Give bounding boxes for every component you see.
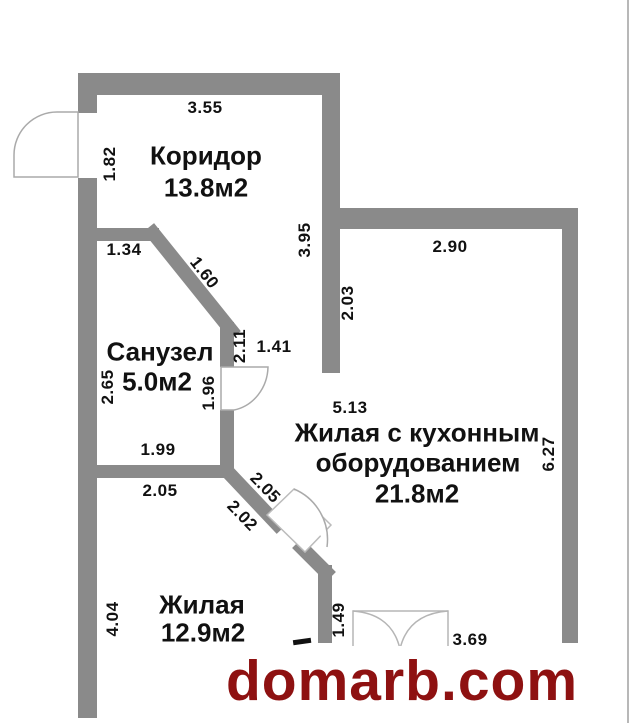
dim-livingkitchen-width: 5.13: [332, 398, 367, 418]
dim-bathroom-left: 2.65: [98, 369, 118, 404]
dim-livingkitchen-right: 6.27: [539, 436, 559, 471]
watermark-text: domarb.com: [226, 648, 578, 714]
clipped-dimension-mark: [293, 638, 312, 645]
dim-livingkitchen-left-upper: 2.03: [338, 285, 358, 320]
dim-living-left: 4.04: [103, 601, 123, 636]
room-label-livingkitchen-1: Жилая с кухонным: [295, 418, 540, 449]
room-area-corridor: 13.8м2: [164, 173, 248, 204]
room-area-livingkitchen: 21.8м2: [375, 479, 459, 510]
floor-plan: 3.55 1.82 1.34 1.60 3.95 2.90 2.03 2.11 …: [0, 0, 630, 723]
walls-and-doors-layer: [0, 0, 630, 723]
dim-bathroom-wall-right: 2.11: [230, 329, 250, 363]
bathroom-door-icon: [221, 367, 268, 410]
dim-bathroom-bottom: 1.99: [140, 440, 175, 460]
entry-door-icon: [14, 112, 78, 177]
room-label-bathroom: Санузел: [107, 337, 214, 368]
dim-bathroom-right-lower: 1.96: [199, 375, 219, 410]
dim-corridor-top: 3.55: [187, 98, 222, 118]
right-border-line: [627, 0, 629, 723]
dim-living-top: 2.05: [142, 481, 177, 501]
room-area-bathroom: 5.0м2: [122, 367, 192, 398]
dim-corridor-right: 3.95: [295, 222, 315, 257]
balcony-double-door-icon: [353, 611, 448, 649]
room-label-living: Жилая: [159, 590, 245, 621]
dim-livingkitchen-top: 2.90: [432, 237, 467, 257]
dim-bathroom-door: 1.41: [256, 337, 291, 357]
room-label-corridor: Коридор: [150, 141, 262, 172]
room-label-livingkitchen-2: оборудованием: [316, 448, 521, 479]
dim-entry-door: 1.82: [100, 146, 120, 181]
dim-bathroom-top: 1.34: [106, 240, 141, 260]
dim-living-right-wall: 1.49: [329, 602, 349, 637]
room-area-living: 12.9м2: [161, 618, 245, 649]
